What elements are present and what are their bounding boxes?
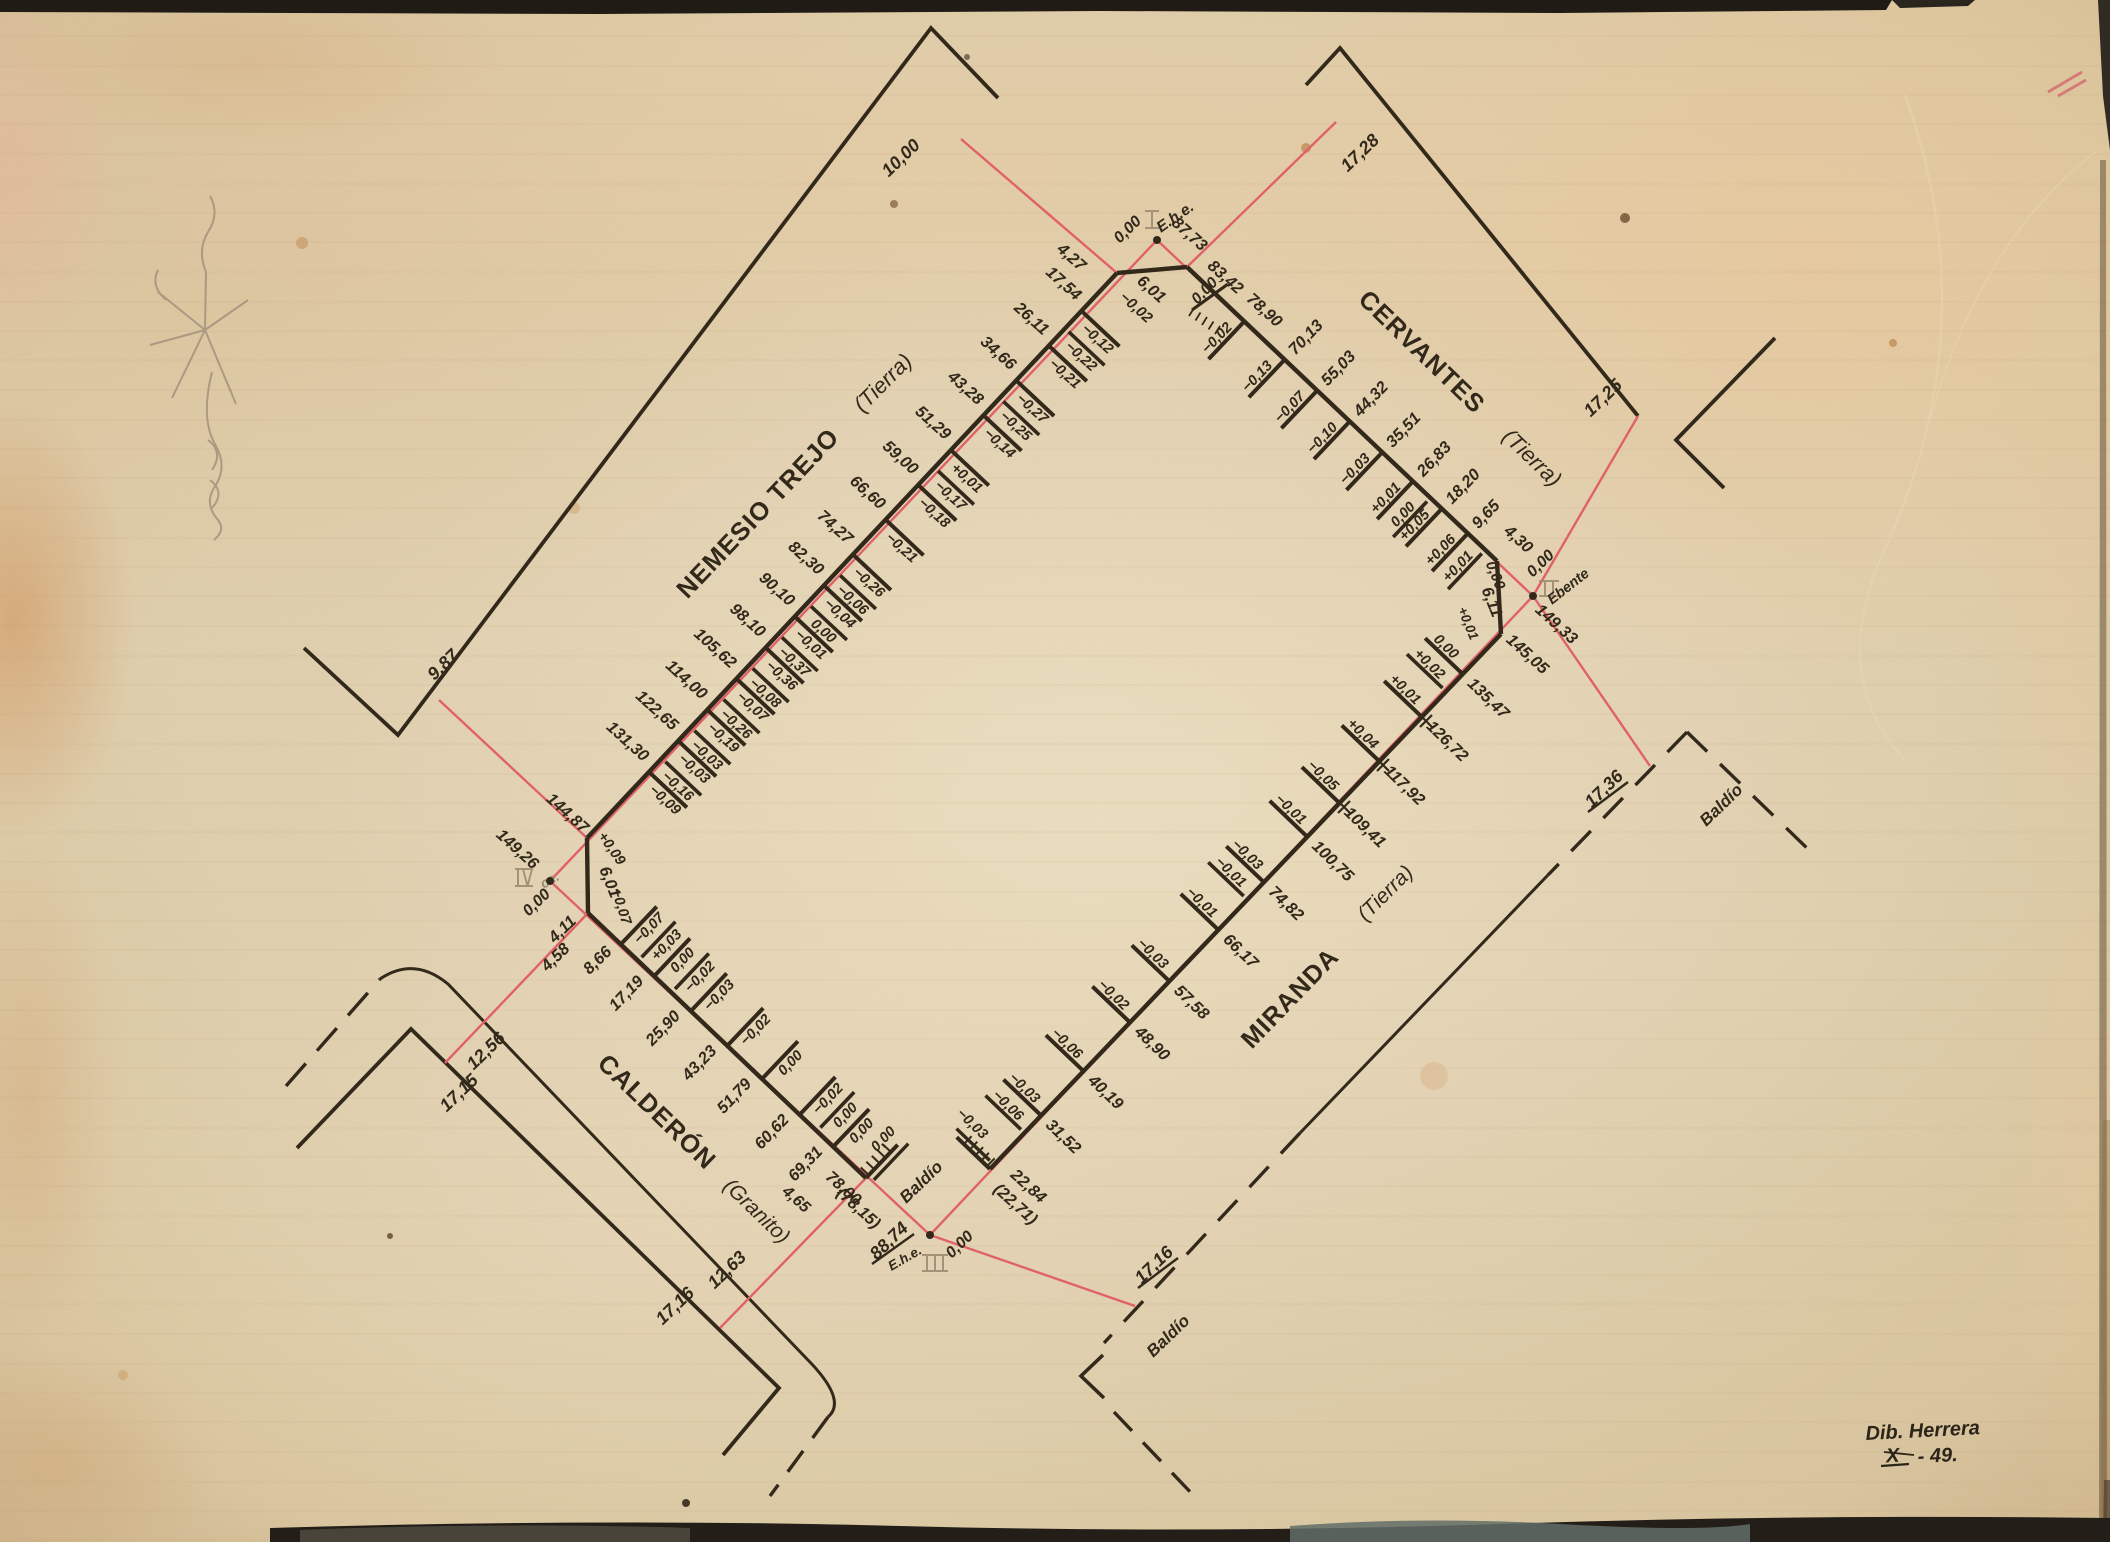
svg-text:- 49.: - 49. (1917, 1444, 1958, 1468)
